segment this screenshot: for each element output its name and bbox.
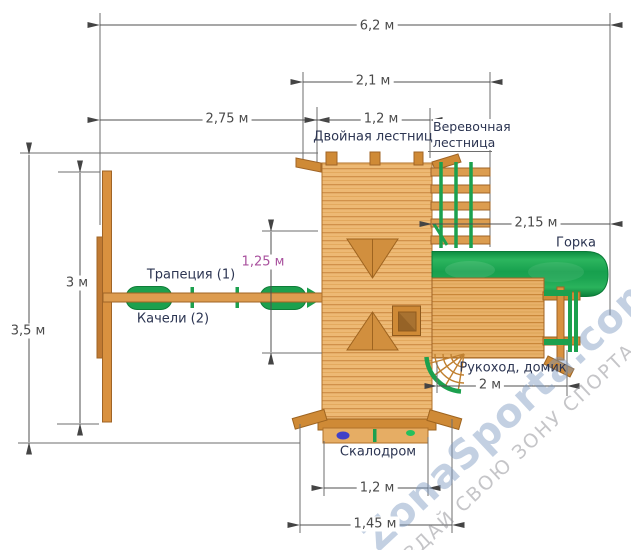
label-rope-ladder: Веревочная лестница [433,119,517,150]
monkey-bars-house [432,278,544,358]
diagram-canvas [0,0,631,550]
label-climbing-wall: Скалодром [340,445,416,460]
dim-total-depth: 3,5 м [8,324,49,339]
dim-swing-beam-length: 3 м [63,276,91,291]
dim-climbing-wall-width: 1,2 м [357,481,398,496]
dim-upper-span: 2,1 м [353,74,394,89]
rope-ladder [431,162,490,248]
playset-structure [97,152,608,443]
dim-monkey-bars-length: 2 м [476,378,504,393]
dim-left-offset: 2,75 м [203,112,252,127]
label-swings: Качели (2) [137,312,209,327]
label-trapeze: Трапеция (1) [147,268,235,283]
dim-slide-length: 2,15 м [512,216,561,231]
label-slide: Горка [556,236,596,251]
label-double-ladder: Двойная лестница [313,130,440,145]
label-monkey-bars-house: Рукоход, домик [459,361,566,376]
swing-beam [103,293,322,302]
dim-total-width: 6,2 м [357,19,398,34]
dim-double-ladder-width: 1,2 м [361,112,402,127]
dim-base-width: 1,45 м [351,517,400,532]
dim-swing-spacing: 1,25 м [239,255,288,270]
playground-plan-diagram: ZonaSporta.com СОЗДАЙ СВОЮ ЗОНУ СПОРТА 6… [0,0,631,550]
